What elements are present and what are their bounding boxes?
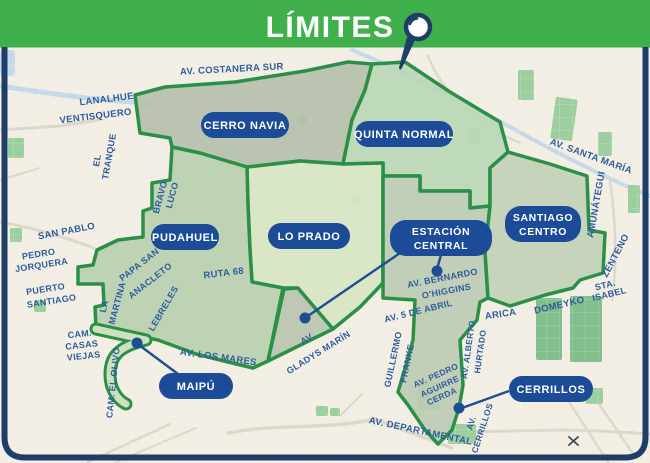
- svg-text:QUINTA NORMAL: QUINTA NORMAL: [354, 129, 454, 141]
- map-svg: AV. COSTANERA SUR LANALHUE VENTISQUERO E…: [0, 0, 650, 463]
- district-badge-pudahuel: PUDAHUEL: [151, 224, 219, 250]
- street-label-el: EL: [91, 153, 103, 167]
- svg-text:CENTRAL: CENTRAL: [414, 240, 468, 252]
- district-badge-cerrillos: CERRILLOS: [509, 376, 593, 402]
- page-title: LÍMITES: [266, 10, 395, 44]
- district-badge-santiago-centro: SANTIAGO CENTRO: [505, 206, 581, 242]
- svg-text:LO PRADO: LO PRADO: [278, 231, 341, 243]
- district-badge-estacion-central: ESTACIÓN CENTRAL: [390, 220, 492, 256]
- callout-dot-cerrillos: [454, 403, 465, 414]
- svg-text:ESTACIÓN: ESTACIÓN: [412, 225, 470, 238]
- district-badge-cerro-navia: CERRO NAVIA: [201, 112, 289, 138]
- svg-text:SANTIAGO: SANTIAGO: [513, 212, 573, 224]
- svg-text:PUDAHUEL: PUDAHUEL: [152, 232, 218, 244]
- district-badge-quinta-normal: QUINTA NORMAL: [354, 121, 454, 147]
- svg-text:CENTRO: CENTRO: [519, 226, 567, 238]
- limites-map-infographic: AV. COSTANERA SUR LANALHUE VENTISQUERO E…: [0, 0, 650, 463]
- callout-dot-estacion-central-exclave: [300, 313, 311, 324]
- district-badge-maipu: MAIPÚ: [159, 373, 233, 399]
- svg-text:MAIPÚ: MAIPÚ: [177, 380, 215, 393]
- callout-dot-maipu: [132, 338, 143, 349]
- svg-text:CERRILLOS: CERRILLOS: [517, 384, 586, 396]
- svg-text:CERRO NAVIA: CERRO NAVIA: [204, 120, 287, 132]
- callout-dot-estacion-central: [432, 266, 443, 277]
- district-badge-lo-prado: LO PRADO: [268, 223, 350, 249]
